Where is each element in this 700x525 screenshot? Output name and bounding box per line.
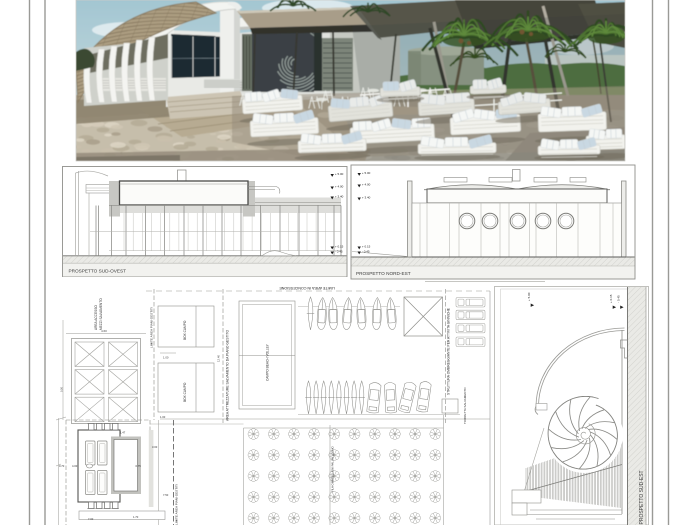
svg-text:+ 5.00: + 5.00 [362, 171, 371, 175]
svg-text:AREA ATTREZZATURE SALVAMENTO D: AREA ATTREZZATURE SALVAMENTO DA PIANO GE… [226, 330, 230, 421]
svg-text:+ 3.40: + 3.40 [362, 196, 371, 200]
svg-text:TORRETTA SALVAMENTO: TORRETTA SALVAMENTO [463, 387, 467, 424]
svg-text:7.50: 7.50 [163, 493, 169, 497]
svg-text:+ 3.40: + 3.40 [335, 195, 344, 199]
svg-text:- 0.45: - 0.45 [362, 250, 370, 254]
svg-text:12.40: 12.40 [217, 355, 221, 362]
svg-text:CAMPO BEACH VOLLEY: CAMPO BEACH VOLLEY [266, 343, 270, 381]
svg-text:- 0.45: - 0.45 [617, 295, 621, 303]
svg-text:+ 4.00: + 4.00 [362, 183, 371, 187]
svg-text:1.47: 1.47 [120, 431, 126, 435]
svg-text:3.00: 3.00 [152, 445, 158, 449]
svg-text:0.50: 0.50 [60, 386, 64, 392]
svg-text:7.00: 7.00 [88, 517, 94, 521]
svg-text:FILA OMBRELLONI PALI IN LEGNO: FILA OMBRELLONI PALI IN LEGNO [331, 446, 335, 492]
svg-text:PROSPETTO NORD-EST: PROSPETTO NORD-EST [356, 271, 411, 276]
svg-text:1.00: 1.00 [160, 415, 166, 419]
svg-text:1.70: 1.70 [133, 515, 139, 519]
svg-text:+ 0.15: + 0.15 [362, 245, 371, 249]
svg-text:STRUTTURA OMBREGGIANTE PER ATT: STRUTTURA OMBREGGIANTE PER ATTIVITA GINN… [447, 307, 451, 395]
svg-text:AREA ACCESSO: AREA ACCESSO [94, 305, 98, 330]
svg-text:+ 0.15: + 0.15 [609, 294, 613, 303]
svg-text:LIMITE AREA PIANI GESTITI: LIMITE AREA PIANI GESTITI [149, 307, 153, 348]
svg-text:LIMITE AREA IN CONCESSIONE: LIMITE AREA IN CONCESSIONE [279, 286, 335, 290]
svg-text:MEZZI SALVAMENTO: MEZZI SALVAMENTO [99, 298, 103, 330]
svg-text:1.00: 1.00 [163, 356, 169, 360]
svg-text:PROSPETTO SUD-OVEST: PROSPETTO SUD-OVEST [69, 269, 127, 274]
svg-text:0.70: 0.70 [59, 464, 65, 468]
svg-text:+ 5.00: + 5.00 [335, 172, 344, 176]
svg-text:- 0.45: - 0.45 [335, 250, 343, 254]
svg-text:+ 0.15: + 0.15 [335, 245, 344, 249]
svg-text:4.60: 4.60 [101, 329, 107, 333]
svg-text:BOX CAMPO: BOX CAMPO [183, 320, 187, 340]
svg-text:LIMITE AREA PIANI GESTITI: LIMITE AREA PIANI GESTITI [175, 484, 179, 525]
svg-text:0.75: 0.75 [136, 464, 142, 468]
svg-text:+ 5.00: + 5.00 [527, 292, 531, 301]
svg-text:+ 4.00: + 4.00 [335, 185, 344, 189]
svg-text:4.00: 4.00 [72, 464, 78, 468]
svg-text:PROSPETTO SUD-EST: PROSPETTO SUD-EST [639, 470, 645, 524]
svg-text:BOX CAMPO: BOX CAMPO [183, 382, 187, 402]
